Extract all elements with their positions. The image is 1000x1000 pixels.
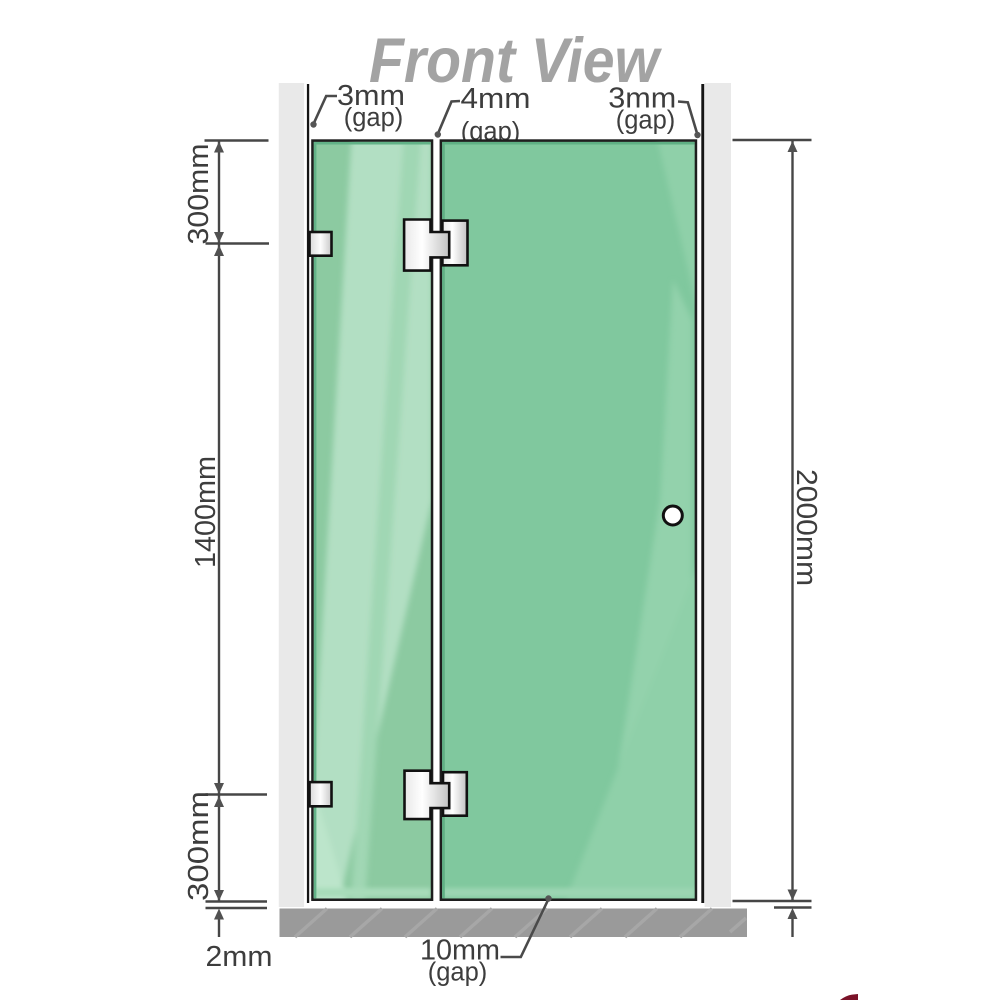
svg-text:(gap): (gap) <box>428 959 488 987</box>
svg-text:1400mm: 1400mm <box>190 456 222 568</box>
svg-text:2000mm: 2000mm <box>790 469 822 586</box>
svg-text:(gap): (gap) <box>616 107 676 135</box>
svg-text:(gap): (gap) <box>344 104 404 132</box>
svg-text:300mm: 300mm <box>183 791 215 901</box>
svg-text:300mm: 300mm <box>183 144 215 245</box>
svg-text:4mm: 4mm <box>461 83 531 115</box>
svg-text:2mm: 2mm <box>206 941 273 973</box>
